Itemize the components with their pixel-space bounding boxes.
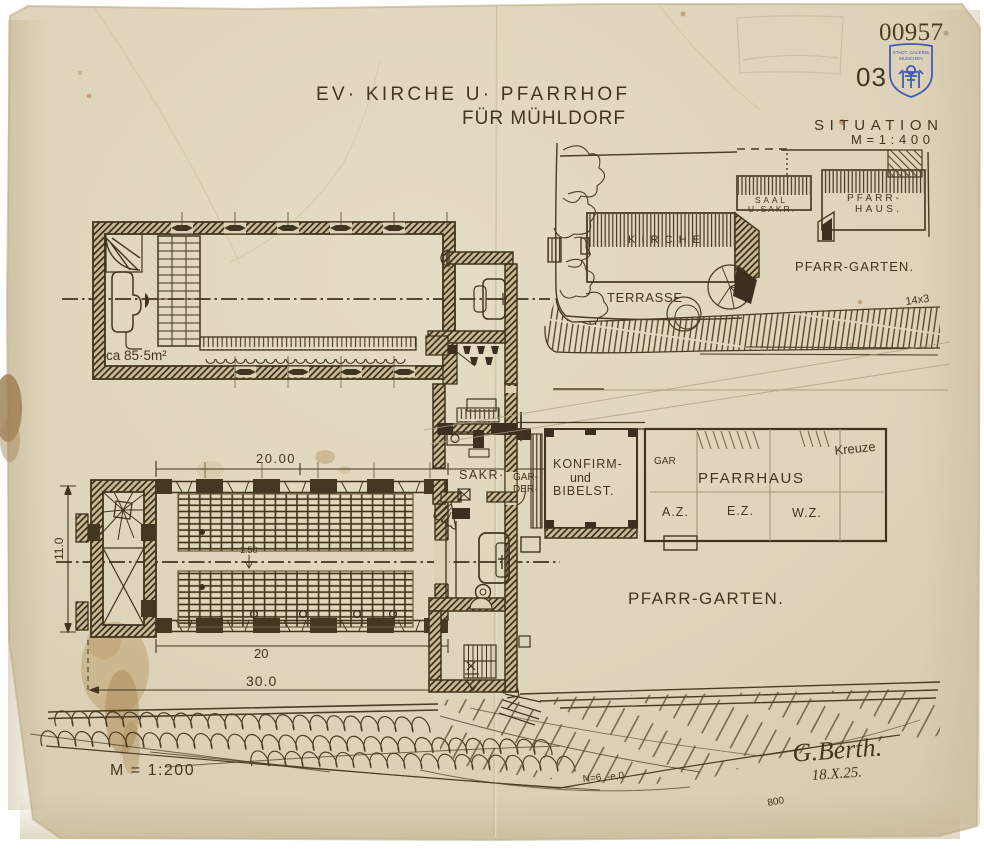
svg-text:KONFIRM-: KONFIRM-: [553, 457, 623, 471]
svg-text:EV· KIRCHE U· PFARRHOF: EV· KIRCHE U· PFARRHOF: [316, 84, 627, 105]
svg-text:PFARR-GARTEN.: PFARR-GARTEN.: [628, 589, 786, 608]
svg-text:20: 20: [254, 646, 268, 661]
svg-text:30.0: 30.0: [246, 673, 277, 689]
svg-text:STADT. GALERIE: STADT. GALERIE: [893, 50, 930, 55]
svg-text:00957: 00957: [879, 19, 943, 46]
svg-text:A.Z.: A.Z.: [662, 505, 689, 519]
svg-text:1.50: 1.50: [240, 545, 258, 555]
svg-text:GAR: GAR: [654, 456, 676, 467]
svg-text:03: 03: [856, 62, 887, 92]
svg-text:und: und: [570, 471, 591, 485]
svg-text:SITUATION: SITUATION: [814, 117, 938, 134]
svg-text:11.0: 11.0: [52, 537, 66, 560]
svg-text:ca 85·5m²: ca 85·5m²: [106, 348, 167, 363]
svg-text:BIBELST.: BIBELST.: [553, 484, 615, 498]
svg-text:PFARRHAUS: PFARRHAUS: [698, 470, 806, 487]
svg-text:PFARR-GARTEN.: PFARR-GARTEN.: [795, 259, 913, 274]
svg-text:W.Z.: W.Z.: [792, 506, 822, 520]
svg-text:MUNCHEN: MUNCHEN: [899, 56, 922, 61]
svg-text:FÜR MÜHLDORF: FÜR MÜHLDORF: [462, 108, 625, 129]
svg-text:SAKR·: SAKR·: [459, 468, 505, 482]
svg-text:M = 1:200: M = 1:200: [110, 762, 195, 779]
svg-text:E.Z.: E.Z.: [727, 504, 754, 518]
svg-text:HAUS.: HAUS.: [855, 204, 899, 215]
